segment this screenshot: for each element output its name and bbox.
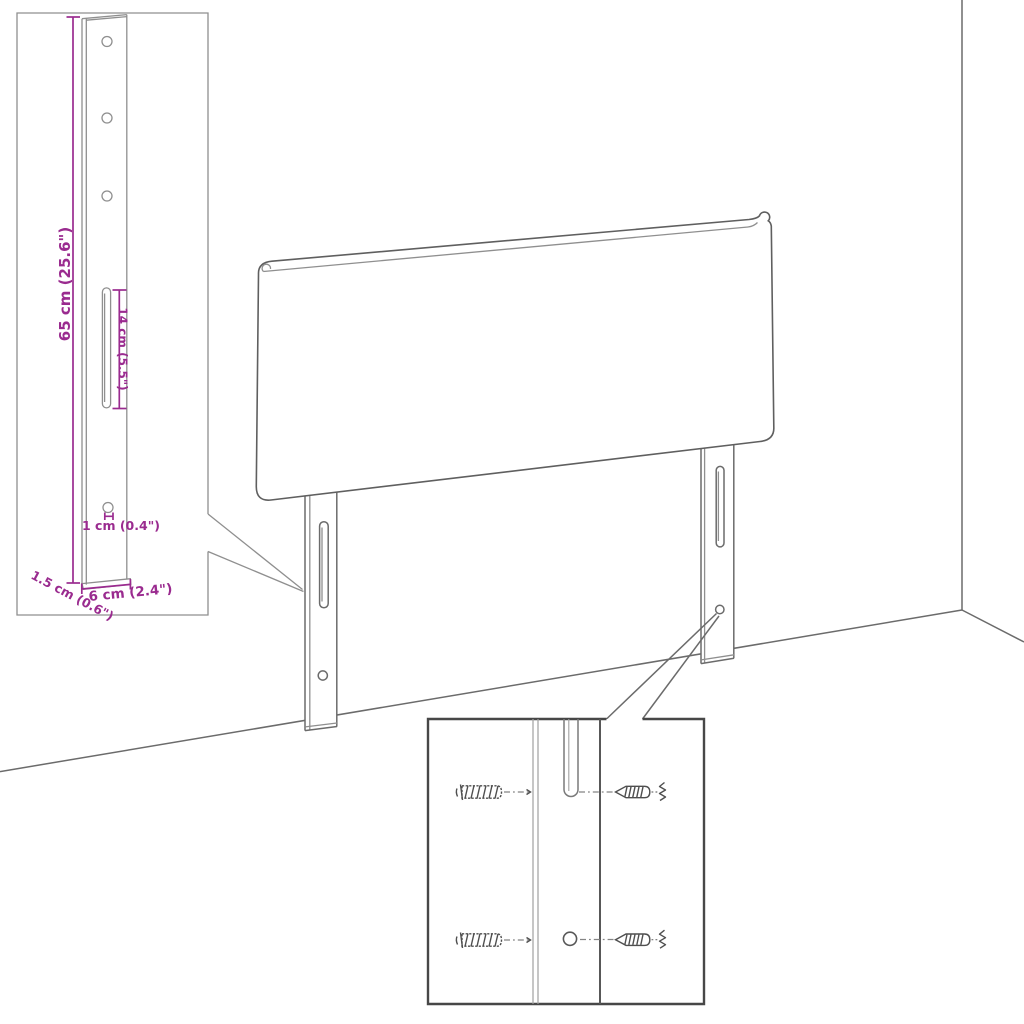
hole-dimension-label: 1 cm (0.4") (82, 518, 160, 533)
hardware-detail-inset (428, 614, 719, 1005)
slot-dimension-label: 14 cm (5.5") (116, 307, 130, 390)
floor-line-right (962, 610, 1024, 642)
right-leg-body (701, 426, 734, 664)
headboard-panel (256, 212, 774, 500)
hardware-inset-background (428, 719, 704, 1004)
height-dimension-label: 65 cm (25.6") (56, 227, 74, 341)
callout-line-lower (208, 552, 304, 592)
panel-outline (256, 212, 774, 500)
headboard-right-leg (701, 426, 734, 664)
hardware-callout-line-right (643, 616, 720, 719)
inset-leg-post (82, 15, 131, 590)
headboard-left-leg (305, 466, 337, 731)
inset-screw-hole (563, 932, 576, 945)
diagram-canvas: 65 cm (25.6") 14 cm (5.5") 1 cm (0.4") 6… (0, 0, 1024, 1024)
headboard-dimension-diagram: 65 cm (25.6") 14 cm (5.5") 1 cm (0.4") 6… (0, 0, 1024, 1024)
callout-line-upper (208, 514, 303, 590)
